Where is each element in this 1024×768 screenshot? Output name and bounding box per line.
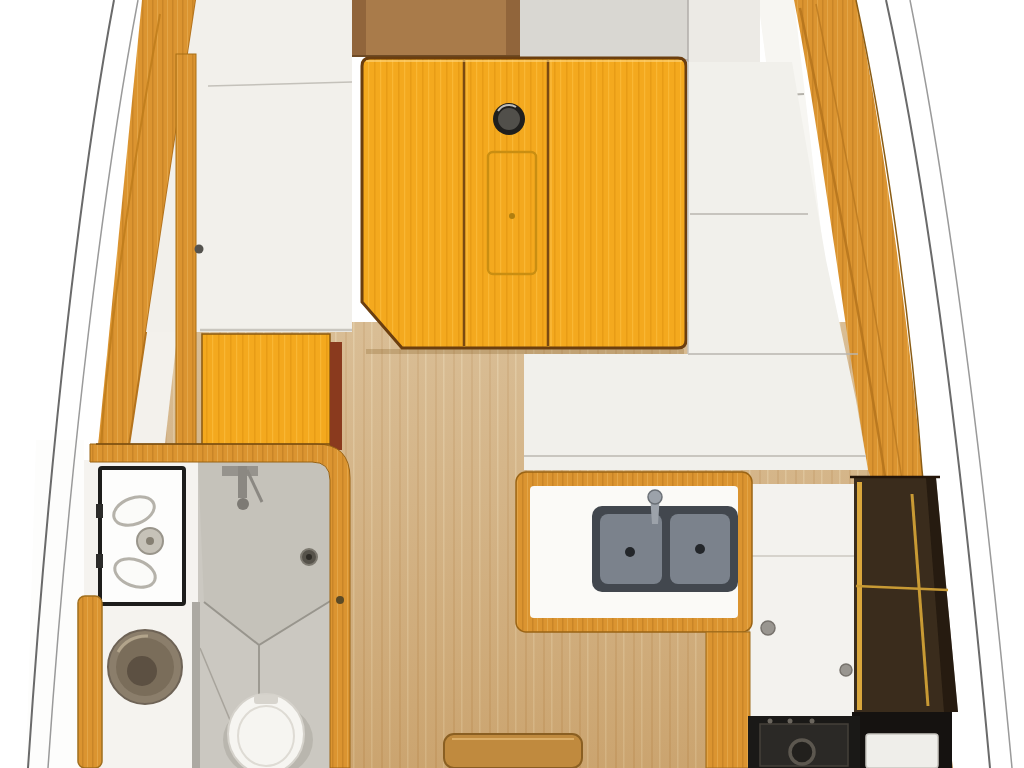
head-door-leaf — [78, 596, 102, 768]
faucet-base — [648, 490, 662, 504]
icebox-lid — [866, 734, 938, 768]
shower-drain-center — [306, 554, 312, 560]
toilet-hinge — [254, 695, 278, 704]
round-basin — [108, 630, 182, 704]
head — [78, 444, 350, 768]
stove-burner — [790, 740, 814, 764]
forward-berth — [520, 0, 688, 60]
floor-plan-svg — [0, 0, 1024, 768]
stove-knob-3 — [810, 719, 815, 724]
port-table-top — [202, 334, 330, 452]
mixer-head — [237, 498, 249, 510]
vanity-hinge-top — [96, 504, 103, 518]
stove-knob-2 — [788, 719, 793, 724]
companionway-step — [444, 734, 582, 768]
vanity-hinge-bottom — [96, 554, 103, 568]
port-lower-deck-patch — [26, 440, 84, 768]
sink-drain-right — [695, 544, 705, 554]
vanity-sink-drain — [146, 537, 154, 545]
table-floor-shadow — [366, 349, 684, 354]
door-leaf — [176, 54, 196, 450]
galley-end-panel — [706, 632, 750, 768]
forward-berth-right — [688, 0, 760, 62]
port-table — [202, 334, 342, 457]
head-door-knob — [336, 596, 344, 604]
saloon-table — [362, 58, 686, 354]
galley-locker-front — [750, 484, 862, 716]
mixer-riser — [238, 466, 247, 498]
saloon-table-top — [362, 58, 686, 348]
mast-column — [352, 0, 520, 56]
shelf-rail-vertical — [857, 482, 862, 710]
door-knob — [195, 245, 204, 254]
locker-knob-1 — [761, 621, 775, 635]
table-panel-latch — [509, 213, 515, 219]
shower-divider — [192, 602, 200, 768]
locker-knob-2 — [840, 664, 852, 676]
round-basin-deep — [127, 656, 157, 686]
mast-column-right-shade — [506, 0, 520, 56]
bottle-recess-inner — [498, 108, 520, 130]
vanity — [96, 468, 184, 604]
port-table-edge — [330, 342, 342, 450]
mast-column-left-shade — [352, 0, 366, 56]
sink-drain-left — [625, 547, 635, 557]
forward-cabin — [352, 0, 760, 62]
floor-plan-canvas — [0, 0, 1024, 768]
stove-knob-1 — [768, 719, 773, 724]
